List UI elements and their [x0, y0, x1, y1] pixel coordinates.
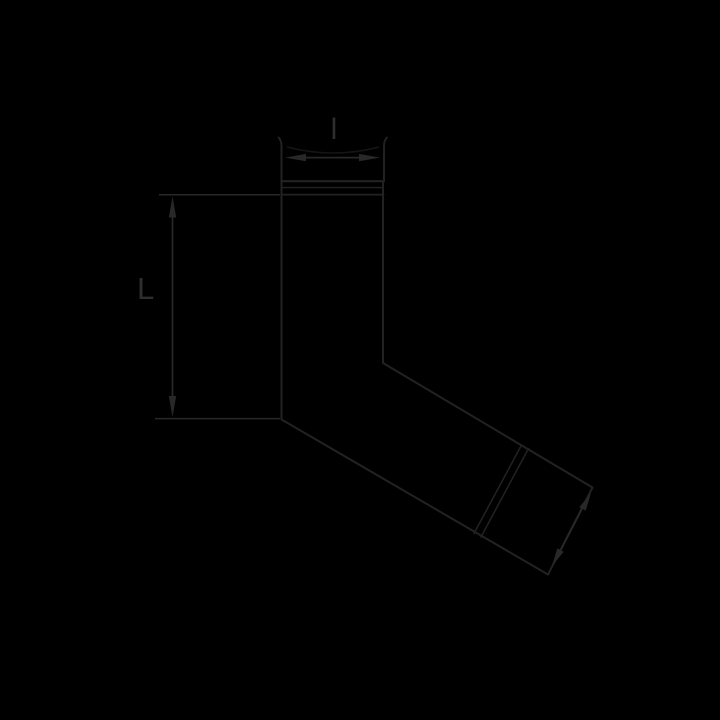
diagram-canvas: l L — [0, 0, 720, 720]
top-dimension-label: l — [331, 113, 338, 146]
pipe-elbow-drawing: l L — [0, 0, 720, 720]
background — [0, 0, 720, 720]
length-dimension-label: L — [137, 271, 154, 306]
